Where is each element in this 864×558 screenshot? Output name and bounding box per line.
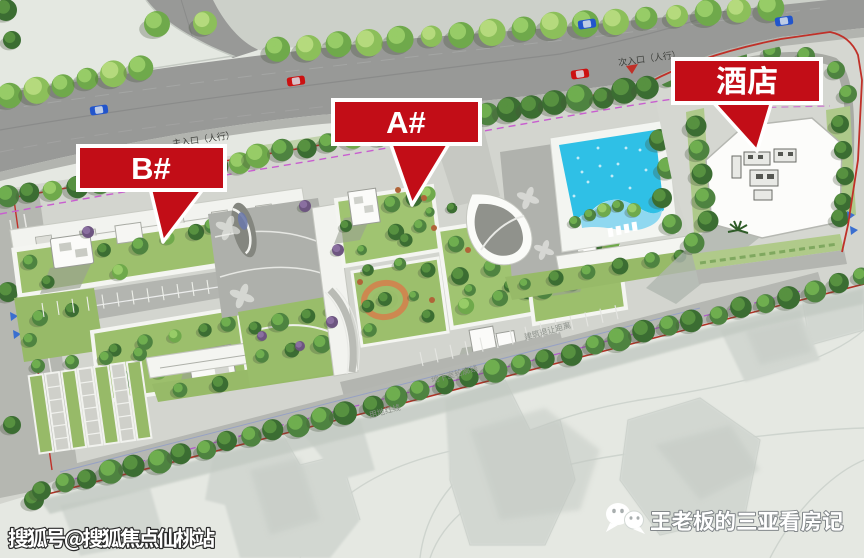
svg-text:B#: B# — [131, 151, 171, 186]
svg-text:A#: A# — [386, 105, 426, 140]
